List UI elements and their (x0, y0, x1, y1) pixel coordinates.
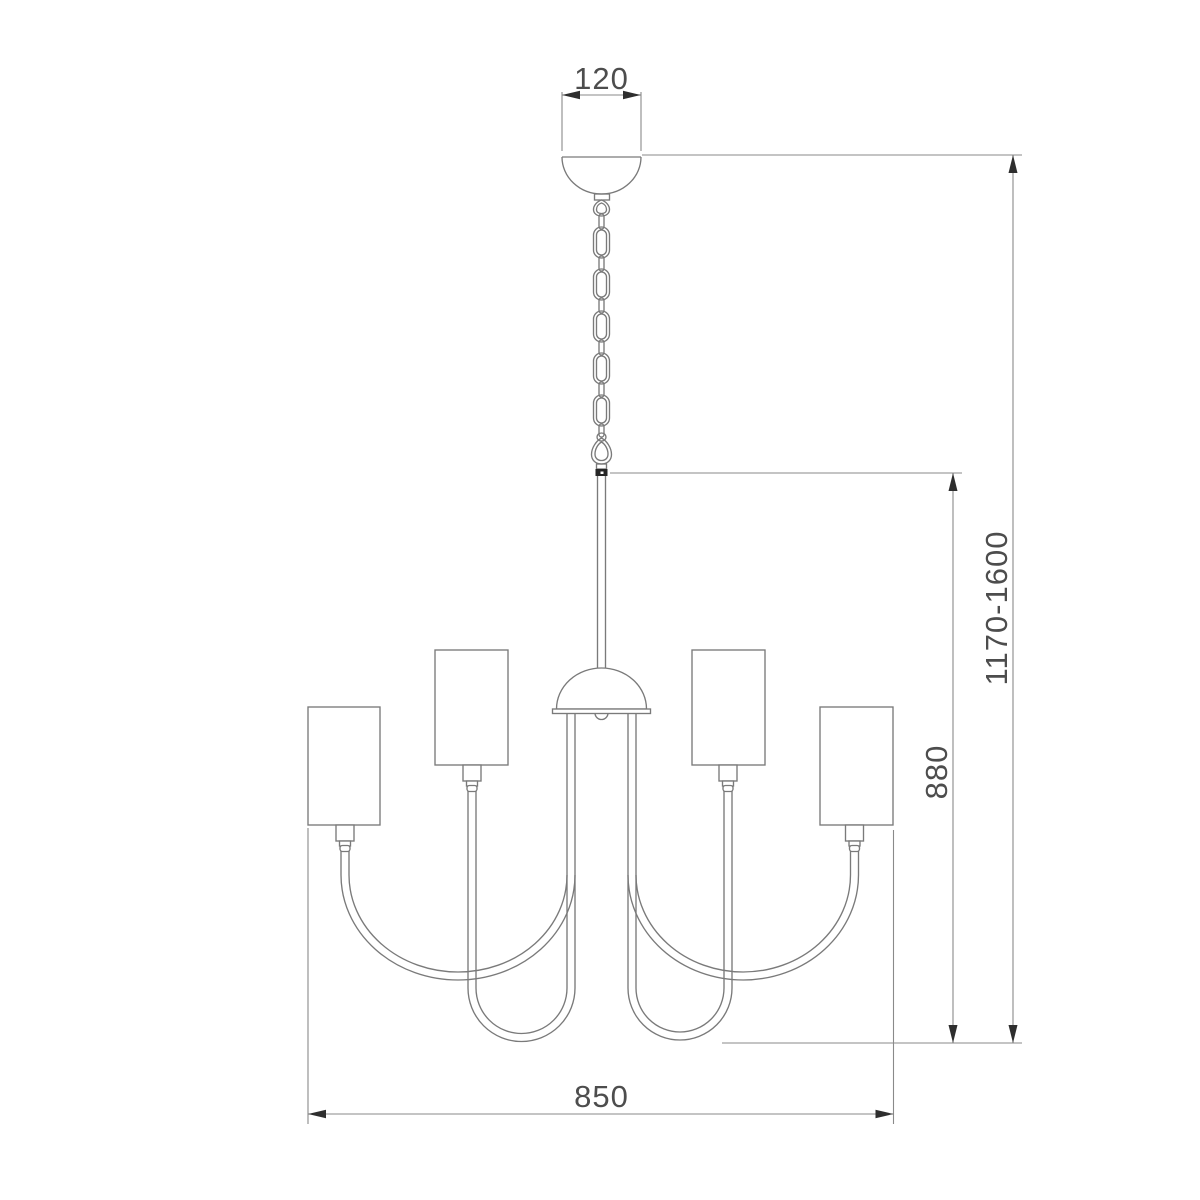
chandelier-dimension-drawing: 120 1170-1600 880 850 (0, 0, 1200, 1200)
arrowhead-down (1009, 1025, 1018, 1043)
dim-label-overall-height: 1170-1600 (979, 531, 1014, 686)
technical-drawing-page: 120 1170-1600 880 850 (0, 0, 1200, 1200)
dim-label-canopy-width: 120 (574, 61, 629, 96)
dim-overall-height: 1170-1600 (642, 155, 1022, 1043)
arm-inner-right (628, 791, 732, 1040)
dim-label-body-drop: 880 (919, 745, 954, 800)
canopy-collar (595, 194, 610, 200)
socket-outer-right (846, 825, 864, 841)
dim-body-width: 850 (308, 828, 894, 1124)
shade-inner-left (435, 650, 508, 792)
hub-dome (553, 668, 651, 720)
arm-outer-left (341, 851, 575, 980)
dim-label-body-width: 850 (574, 1079, 629, 1114)
shade-outer-left (308, 707, 380, 852)
shade-outer-right (820, 707, 893, 852)
hanging-rod (598, 476, 606, 670)
arm-inner-left (468, 791, 575, 1042)
dim-body-drop: 880 (610, 473, 962, 1043)
arrowhead-up (1009, 155, 1018, 173)
ceiling-canopy (562, 157, 641, 200)
socket-inner-right (719, 765, 737, 781)
chain-hook (592, 433, 612, 476)
dim-canopy-width: 120 (562, 61, 641, 151)
shade-inner-right (692, 650, 765, 792)
socket-outer-left (336, 825, 354, 841)
arrowhead-down (949, 1025, 958, 1043)
hub-tubes (567, 712, 636, 988)
socket-inner-left (463, 765, 481, 781)
arrowhead-left (308, 1110, 326, 1118)
arrowhead-right (876, 1110, 894, 1118)
arm-outer-right (628, 843, 859, 980)
hub-plate (553, 709, 651, 714)
suspension-chain (594, 200, 610, 437)
arrowhead-up (949, 473, 958, 491)
